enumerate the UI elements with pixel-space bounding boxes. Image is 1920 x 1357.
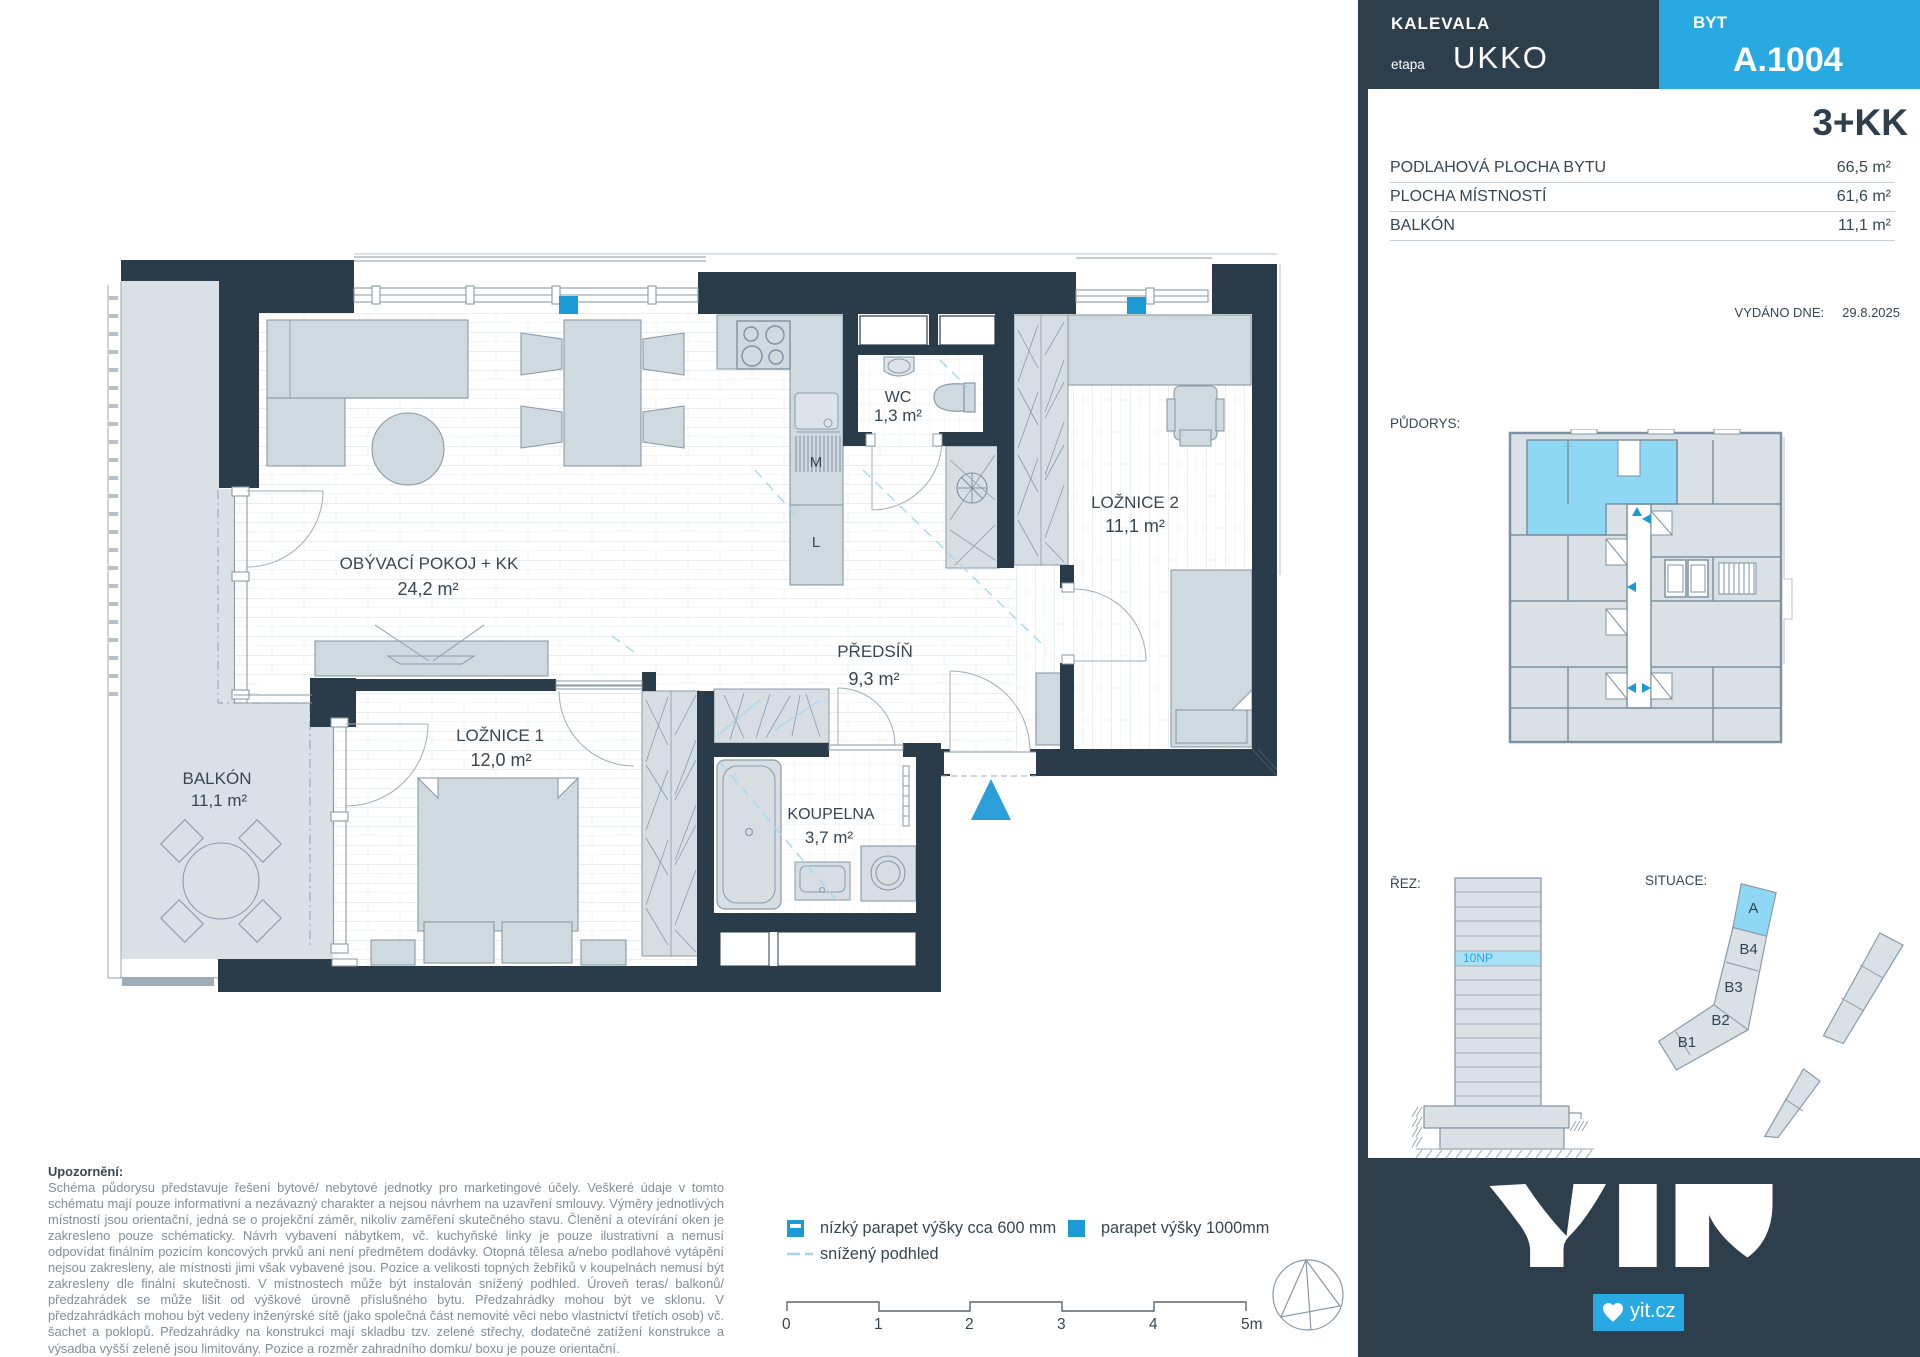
svg-text:B2: B2: [1711, 1012, 1729, 1029]
svg-text:B4: B4: [1739, 941, 1757, 958]
svg-text:12,0 m²: 12,0 m²: [470, 750, 531, 770]
svg-text:PŘEDSÍŇ: PŘEDSÍŇ: [837, 642, 913, 661]
svg-text:11,1 m²: 11,1 m²: [191, 791, 248, 810]
svg-text:M: M: [810, 454, 823, 471]
svg-text:1: 1: [874, 1316, 883, 1333]
svg-text:B3: B3: [1724, 979, 1742, 996]
svg-text:1,3 m²: 1,3 m²: [874, 406, 923, 425]
svg-text:10NP: 10NP: [1463, 951, 1493, 965]
svg-text:WC: WC: [885, 389, 912, 406]
svg-text:9,3 m²: 9,3 m²: [848, 669, 899, 689]
svg-text:LOŽNICE 1: LOŽNICE 1: [456, 726, 544, 745]
svg-text:parapet výšky 1000mm: parapet výšky 1000mm: [1101, 1219, 1269, 1237]
svg-text:A: A: [1748, 900, 1758, 917]
svg-text:11,1 m²: 11,1 m²: [1105, 516, 1165, 536]
svg-text:KOUPELNA: KOUPELNA: [787, 806, 874, 823]
svg-text:24,2 m²: 24,2 m²: [397, 579, 458, 599]
svg-text:2: 2: [965, 1316, 974, 1333]
svg-text:3: 3: [1057, 1316, 1066, 1333]
svg-text:BALKÓN: BALKÓN: [183, 769, 252, 788]
svg-text:L: L: [812, 534, 820, 551]
svg-text:0: 0: [782, 1316, 791, 1333]
svg-text:nízký parapet výšky cca 600 mm: nízký parapet výšky cca 600 mm: [820, 1219, 1056, 1237]
svg-text:5m: 5m: [1241, 1316, 1263, 1333]
svg-text:B1: B1: [1678, 1034, 1696, 1051]
svg-text:4: 4: [1149, 1316, 1158, 1333]
svg-text:OBÝVACÍ POKOJ + KK: OBÝVACÍ POKOJ + KK: [340, 554, 519, 573]
svg-text:snížený podhled: snížený podhled: [820, 1245, 939, 1263]
svg-text:LOŽNICE 2: LOŽNICE 2: [1091, 493, 1179, 512]
svg-text:3,7 m²: 3,7 m²: [805, 828, 854, 847]
